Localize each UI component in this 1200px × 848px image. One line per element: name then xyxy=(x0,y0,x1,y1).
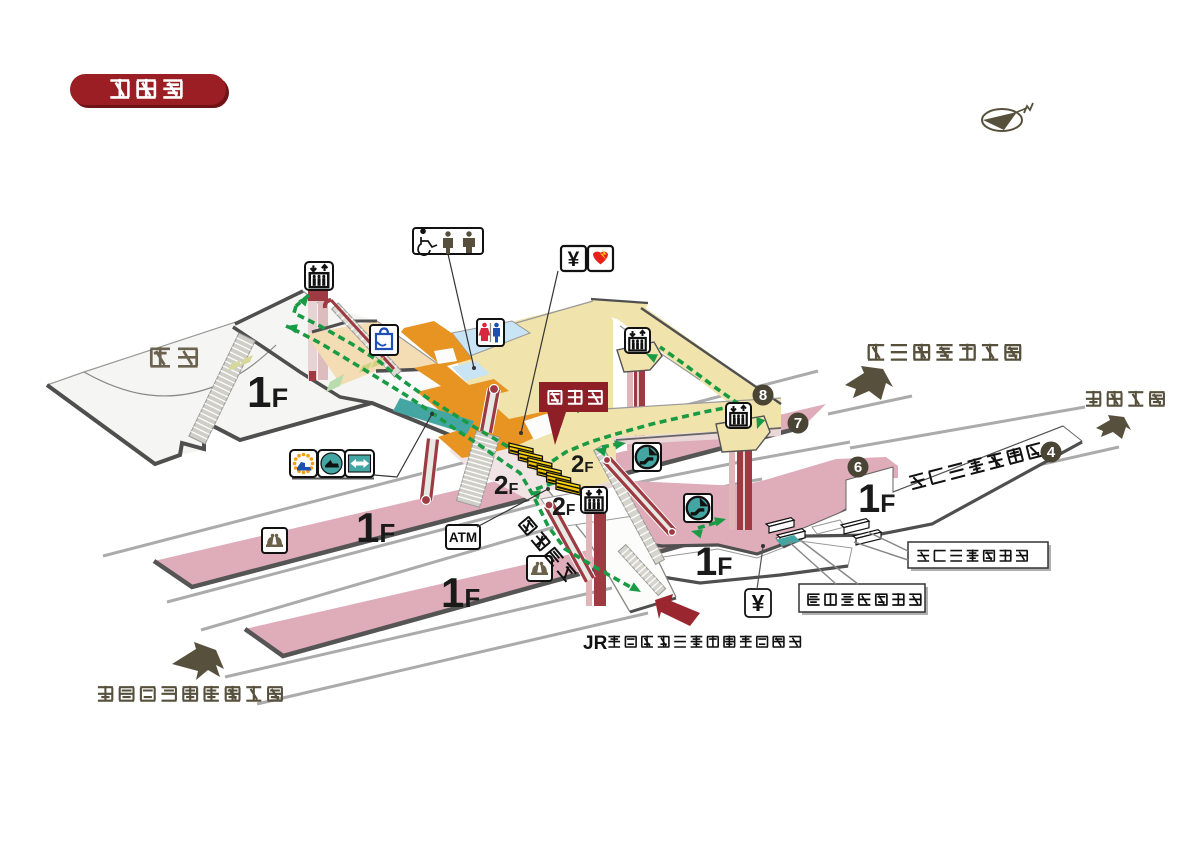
svg-text:6: 6 xyxy=(854,459,862,476)
svg-text:¥: ¥ xyxy=(752,590,765,616)
svg-text:ATM: ATM xyxy=(449,530,477,545)
svg-text:7: 7 xyxy=(794,415,802,432)
svg-text:¥: ¥ xyxy=(568,248,580,271)
svg-text:JR: JR xyxy=(583,633,608,654)
svg-text:4: 4 xyxy=(1047,444,1056,461)
svg-text:8: 8 xyxy=(759,387,767,404)
